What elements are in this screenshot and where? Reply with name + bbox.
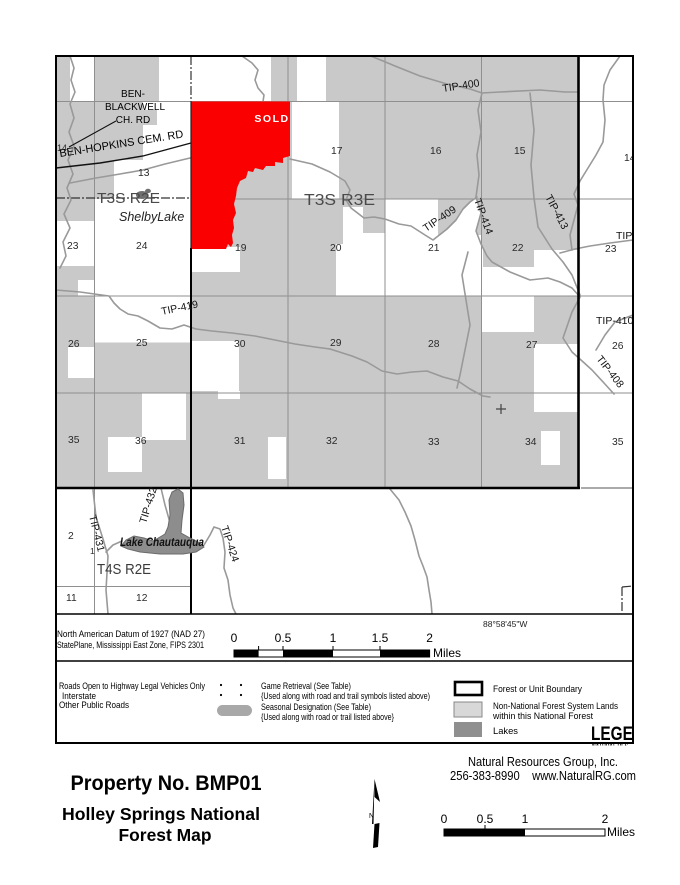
- svg-text:21: 21: [428, 243, 440, 254]
- svg-text:17: 17: [331, 146, 343, 157]
- svg-text:29: 29: [330, 338, 342, 349]
- svg-text:StatePlane, Mississippi East Z: StatePlane, Mississippi East Zone, FIPS …: [57, 640, 204, 651]
- svg-text:24: 24: [136, 241, 148, 252]
- svg-text:North American Datum of 1927 (: North American Datum of 1927 (NAD 27): [57, 629, 205, 640]
- svg-text:ShelbyLake: ShelbyLake: [119, 210, 184, 224]
- svg-text:13: 13: [138, 168, 150, 179]
- svg-text:34: 34: [525, 437, 537, 448]
- svg-text:T4S R2E: T4S R2E: [97, 561, 151, 578]
- svg-text:Miles: Miles: [433, 646, 461, 660]
- svg-text:within this National Forest: within this National Forest: [492, 711, 593, 721]
- svg-text:Miles: Miles: [607, 825, 635, 839]
- svg-text:Game Retrieval (See Table): Game Retrieval (See Table): [261, 681, 351, 691]
- svg-text:0: 0: [231, 631, 238, 645]
- svg-text:20: 20: [330, 243, 342, 254]
- svg-text:11: 11: [66, 593, 77, 604]
- svg-text:0.5: 0.5: [477, 812, 494, 826]
- svg-text:27: 27: [526, 340, 538, 351]
- svg-text:Lakes: Lakes: [493, 726, 518, 736]
- svg-text:{Used along with road and trai: {Used along with road and trail symbols …: [261, 691, 430, 701]
- svg-text:T3S R3E: T3S R3E: [304, 192, 375, 209]
- svg-text:1.5: 1.5: [372, 631, 389, 645]
- svg-text:TIP-4: TIP-4: [616, 230, 642, 242]
- svg-text:25: 25: [136, 338, 148, 349]
- svg-text:2: 2: [68, 531, 74, 542]
- svg-text:35: 35: [68, 435, 80, 446]
- svg-text:T3S R2E: T3S R2E: [97, 191, 160, 207]
- svg-text:BLACKWELL: BLACKWELL: [105, 102, 165, 113]
- svg-text:23: 23: [605, 244, 617, 255]
- svg-text:22: 22: [512, 243, 524, 254]
- svg-text:26: 26: [68, 339, 80, 350]
- svg-text:15: 15: [514, 146, 526, 157]
- svg-text:Roads Open to Highway Legal Ve: Roads Open to Highway Legal Vehicles Onl…: [59, 681, 205, 691]
- svg-text:Lake Chautauqua: Lake Chautauqua: [120, 535, 204, 549]
- svg-text:CH. RD: CH. RD: [116, 115, 150, 126]
- svg-text:36: 36: [135, 436, 147, 447]
- svg-text:1: 1: [522, 812, 529, 826]
- svg-text:32: 32: [326, 436, 338, 447]
- svg-text:Seasonal Designation (See Tabl: Seasonal Designation (See Table): [261, 702, 371, 712]
- svg-text:SOLD: SOLD: [254, 113, 289, 125]
- svg-text:33: 33: [428, 437, 440, 448]
- svg-text:Non-National Forest System Lan: Non-National Forest System Lands: [493, 701, 618, 711]
- svg-text:35: 35: [612, 437, 624, 448]
- svg-text:0: 0: [441, 812, 448, 826]
- svg-text:0.5: 0.5: [275, 631, 292, 645]
- svg-text:30: 30: [234, 339, 246, 350]
- svg-text:BEN-: BEN-: [121, 89, 145, 100]
- svg-text:N: N: [369, 813, 374, 820]
- svg-text:256-383-8990 www.NaturalRG.: 256-383-8990 www.NaturalRG.com: [450, 769, 636, 783]
- svg-text:Forest Map: Forest Map: [119, 825, 212, 845]
- svg-text:Other Public Roads: Other Public Roads: [59, 700, 129, 710]
- svg-text:88°58'45"W: 88°58'45"W: [483, 619, 527, 629]
- svg-text:Holley Springs National: Holley Springs National: [62, 804, 260, 824]
- svg-text:23: 23: [67, 241, 79, 252]
- svg-text:28: 28: [428, 339, 440, 350]
- svg-text:Natural Resources Group, Inc.: Natural Resources Group, Inc.: [468, 755, 618, 769]
- svg-text:Property No. BMP01: Property No. BMP01: [71, 772, 262, 795]
- svg-text:12: 12: [136, 593, 148, 604]
- svg-text:31: 31: [234, 436, 246, 447]
- svg-text:NATURAL RES: NATURAL RES: [592, 742, 628, 751]
- svg-text:1: 1: [330, 631, 337, 645]
- svg-text:2: 2: [426, 631, 433, 645]
- svg-text:TIP-410: TIP-410: [596, 315, 634, 327]
- svg-text:2: 2: [602, 812, 609, 826]
- svg-text:Forest or Unit Boundary: Forest or Unit Boundary: [493, 684, 582, 694]
- svg-text:{Used along with road or trail: {Used along with road or trail listed ab…: [261, 712, 394, 722]
- svg-text:26: 26: [612, 341, 624, 352]
- svg-text:16: 16: [430, 146, 442, 157]
- svg-text:19: 19: [235, 243, 247, 254]
